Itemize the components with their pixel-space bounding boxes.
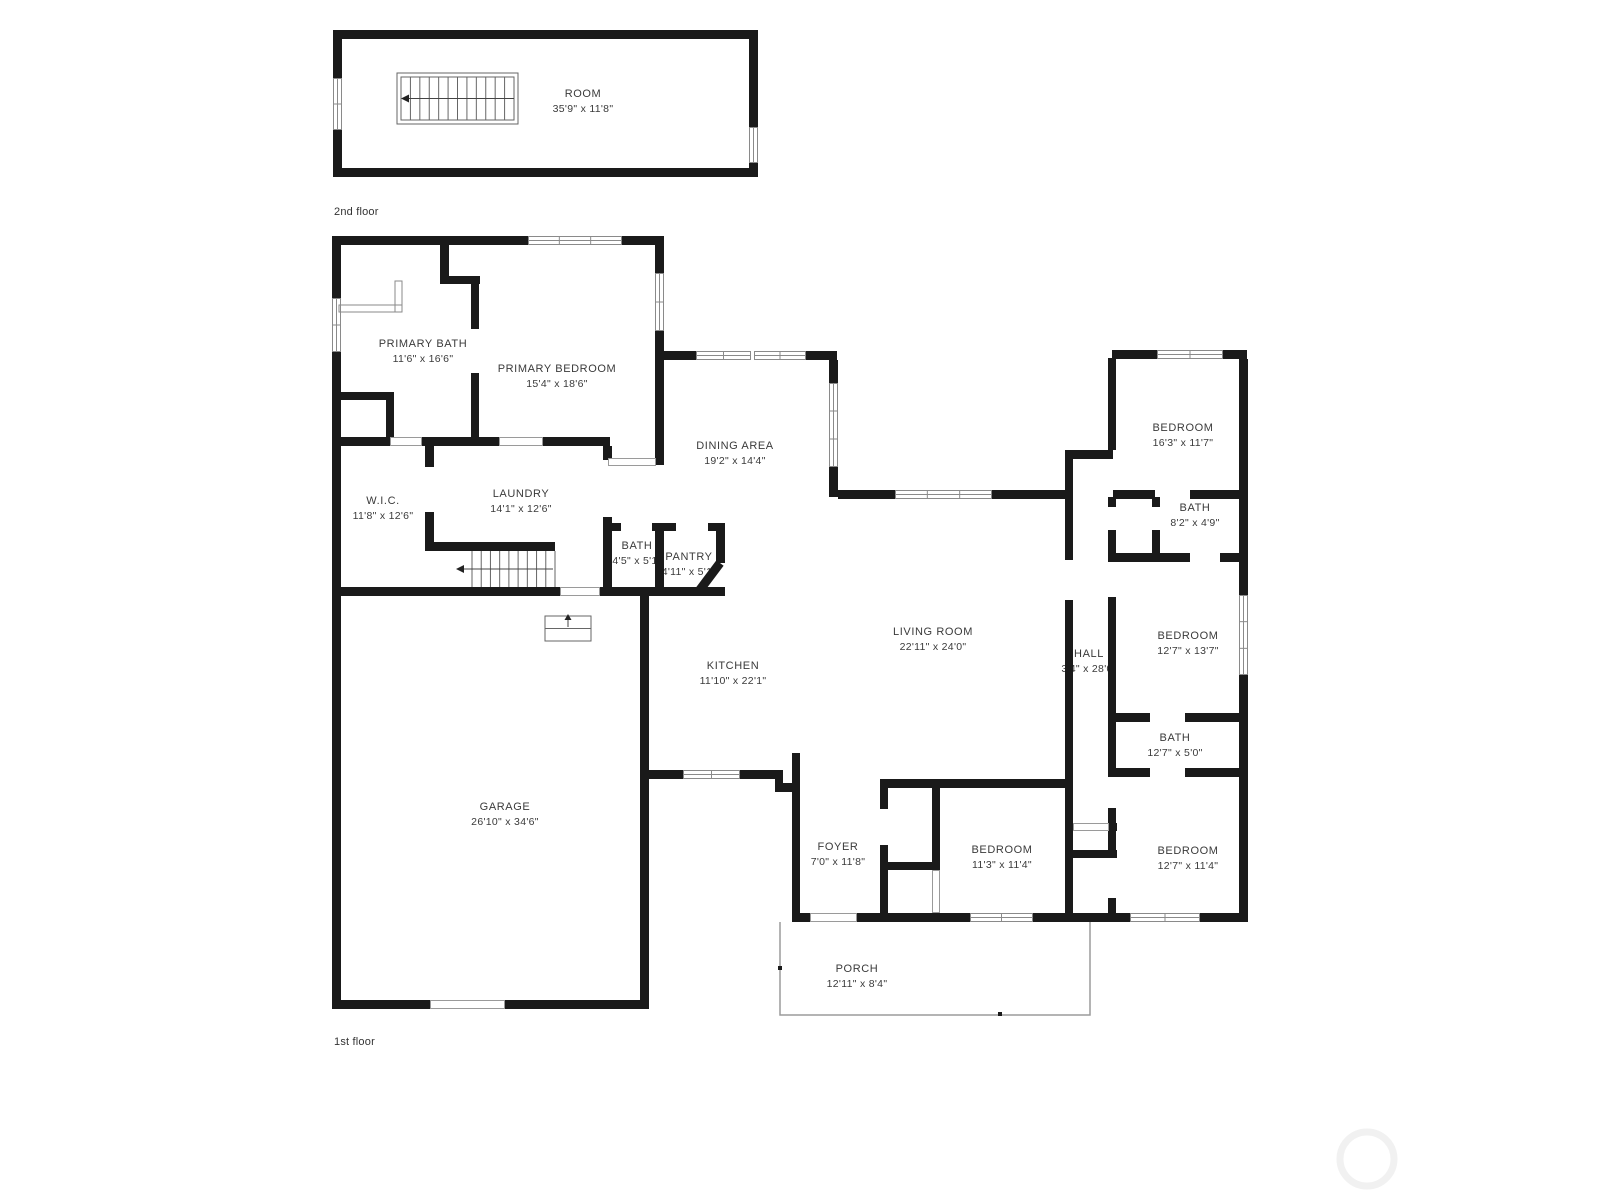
room-label-porch: PORCH 12'11" x 8'4" — [827, 962, 888, 992]
attic-access-marker — [545, 614, 591, 641]
stairs-1st-floor — [456, 551, 555, 587]
room-label-garage: GARAGE 26'10" x 34'6" — [471, 800, 539, 830]
windows-layer — [332, 78, 1248, 1009]
room-label-primary-bedroom: PRIMARY BEDROOM 15'4" x 18'6" — [498, 362, 617, 392]
room-label-bath-top-right: BATH 8'2" x 4'9" — [1170, 501, 1219, 531]
details-layer — [1340, 1132, 1394, 1186]
bath-counter-outline — [339, 281, 402, 312]
room-label-room-2f: ROOM 35'9" x 11'8" — [553, 87, 614, 117]
stairs-2nd-floor — [397, 73, 518, 124]
room-label-wic: W.I.C. 11'8" x 12'6" — [353, 494, 414, 524]
room-label-bedroom-bottom-right: BEDROOM 12'7" x 11'4" — [1157, 844, 1218, 874]
floor-plan-drawing — [0, 0, 1600, 1200]
room-label-dining-area: DINING AREA 19'2" x 14'4" — [696, 439, 774, 469]
floor-label-1st-floor: 1st floor — [334, 1036, 375, 1048]
room-label-bath-small: BATH 4'5" x 5'1" — [612, 539, 661, 569]
stairs-direction-arrow-icon — [456, 565, 464, 573]
room-label-hall: HALL 3'4" x 28'0" — [1061, 647, 1116, 677]
stairs-direction-arrow-icon — [401, 95, 409, 103]
walls-layer — [332, 30, 1248, 1009]
floor-label-2nd-floor: 2nd floor — [334, 206, 379, 218]
room-label-foyer: FOYER 7'0" x 11'8" — [811, 840, 866, 870]
room-label-bedroom-top-right: BEDROOM 16'3" x 11'7" — [1152, 421, 1213, 451]
up-arrow-icon — [565, 614, 572, 620]
room-label-living-room: LIVING ROOM 22'11" x 24'0" — [893, 625, 973, 655]
room-label-bedroom-mid-right: BEDROOM 12'7" x 13'7" — [1157, 629, 1219, 659]
room-label-bath-right: BATH 12'7" x 5'0" — [1147, 731, 1202, 761]
watermark-circle — [1340, 1132, 1394, 1186]
porch-outline — [778, 922, 1090, 1016]
room-label-primary-bath: PRIMARY BATH 11'6" x 16'6" — [379, 337, 468, 367]
room-label-bedroom-bottom-center: BEDROOM 11'3" x 11'4" — [971, 843, 1032, 873]
floor-plan-canvas: 2nd floor 1st floor ROOM 35'9" x 11'8" P… — [0, 0, 1600, 1200]
room-label-kitchen: KITCHEN 11'10" x 22'1" — [700, 659, 767, 689]
room-label-laundry: LAUNDRY 14'1" x 12'6" — [490, 487, 552, 517]
room-label-pantry: PANTRY 4'11" x 5'1" — [662, 550, 717, 580]
